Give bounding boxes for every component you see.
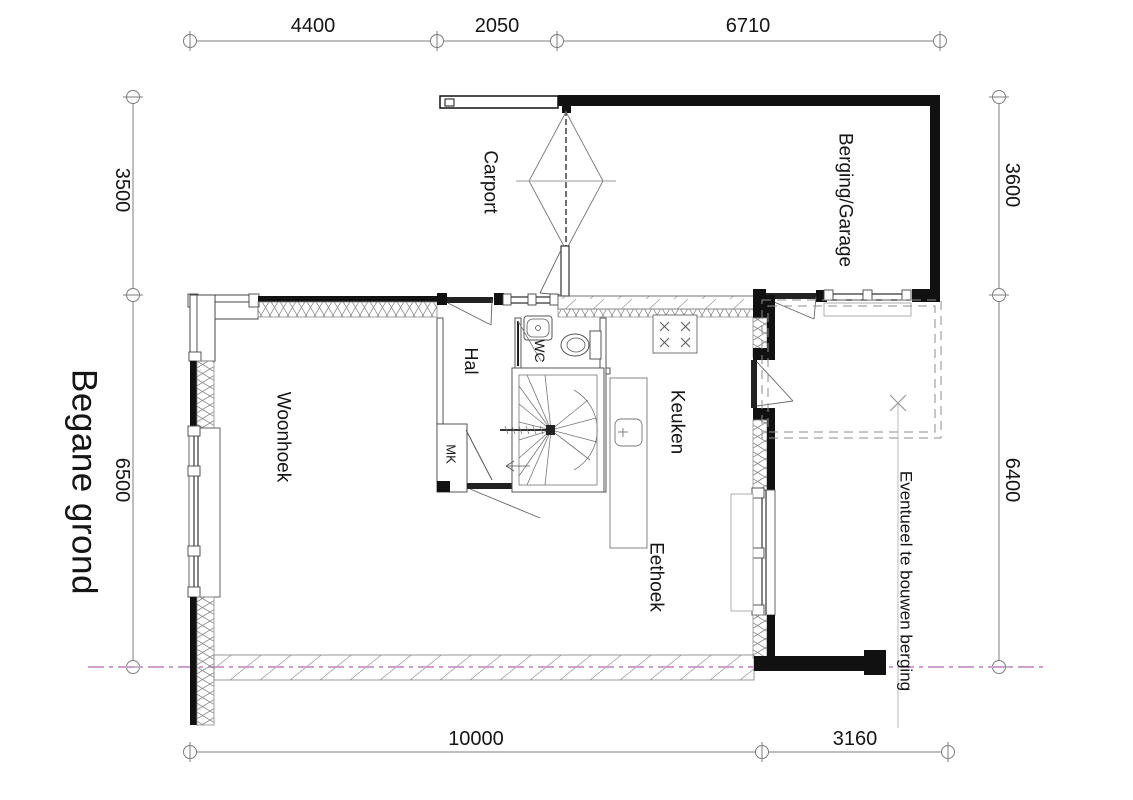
room-label-carport: Carport — [481, 150, 500, 213]
dim-bottom-1: 10000 — [448, 729, 504, 749]
dim-bottom-2: 3160 — [833, 729, 878, 749]
room-label-woonhoek: Woonhoek — [274, 392, 293, 483]
dim-top-3: 6710 — [726, 16, 771, 36]
house-right-wall — [731, 318, 886, 675]
garage-walls — [558, 95, 940, 319]
dim-left-1: 3500 — [112, 168, 132, 213]
wc-fixtures — [518, 316, 601, 366]
kitchen-counter — [610, 378, 647, 548]
dim-right-1: 3600 — [1002, 163, 1022, 208]
room-label-future-berging: Eventueel te bouwen berging — [898, 471, 915, 691]
cooktop-icon — [653, 315, 697, 353]
floorplan-drawing — [0, 0, 1133, 800]
stairs — [500, 368, 604, 492]
room-label-wc: WC — [533, 339, 547, 362]
room-label-mk: MK — [445, 444, 458, 464]
room-label-keuken: Keuken — [668, 390, 687, 454]
page-title: Begane grond — [67, 369, 102, 595]
toilet-icon — [561, 331, 601, 359]
room-label-hal: Hal — [462, 347, 480, 374]
dim-top-1: 4400 — [291, 16, 336, 36]
room-label-eethoek: Eethoek — [647, 542, 666, 612]
dim-top-2: 2050 — [475, 16, 520, 36]
room-label-berging-garage: Berging/Garage — [836, 133, 855, 267]
sink-icon — [615, 419, 642, 446]
dim-right-2: 6400 — [1002, 458, 1022, 503]
floorplan-page: Begane grond 4400 2050 6710 3500 6500 36… — [0, 0, 1133, 800]
dim-left-2: 6500 — [112, 458, 132, 503]
carport-structure — [440, 96, 616, 296]
